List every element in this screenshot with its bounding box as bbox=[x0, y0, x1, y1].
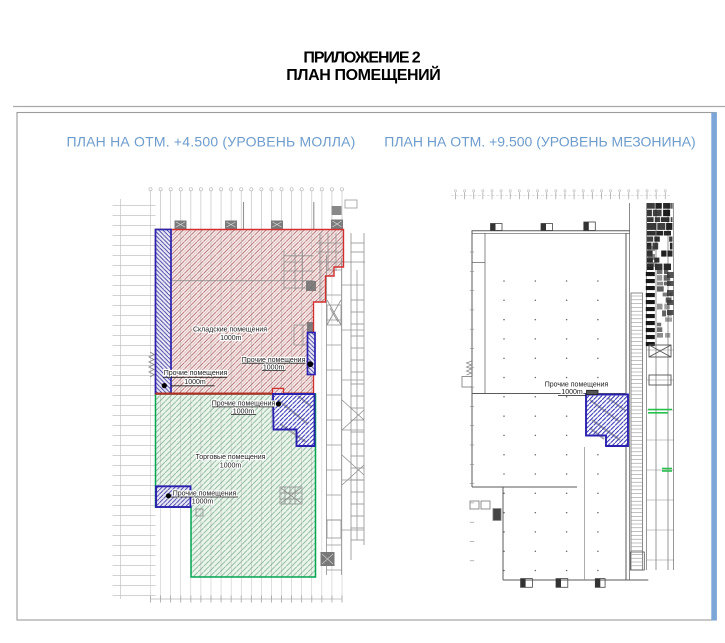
svg-text:ПРИЛОЖЕНИЕ 2: ПРИЛОЖЕНИЕ 2 bbox=[303, 50, 420, 67]
svg-text:ПЛАН НА ОТМ. +4.500 (УРОВЕНЬ М: ПЛАН НА ОТМ. +4.500 (УРОВЕНЬ МОЛЛА) bbox=[66, 134, 355, 150]
svg-text:1000m: 1000m bbox=[184, 379, 206, 386]
svg-text:1000m: 1000m bbox=[220, 335, 242, 342]
svg-text:1000m: 1000m bbox=[192, 499, 214, 506]
svg-text:Прочие помещения: Прочие помещения bbox=[173, 491, 237, 498]
svg-text:1000m: 1000m bbox=[220, 463, 242, 470]
svg-text:Прочие помещения: Прочие помещения bbox=[545, 381, 609, 388]
svg-text:ПЛАН НА ОТМ. +9.500 (УРОВЕНЬ М: ПЛАН НА ОТМ. +9.500 (УРОВЕНЬ МЕЗОНИНА) bbox=[384, 134, 695, 150]
svg-text:1000m: 1000m bbox=[561, 389, 583, 396]
svg-text:Прочие помещения: Прочие помещения bbox=[242, 357, 306, 364]
svg-text:Прочие помещения: Прочие помещения bbox=[164, 370, 228, 377]
svg-text:Торговые помещения: Торговые помещения bbox=[196, 454, 266, 461]
svg-text:ПЛАН ПОМЕЩЕНИЙ: ПЛАН ПОМЕЩЕНИЙ bbox=[286, 65, 440, 84]
svg-text:Складские помещения: Складские помещения bbox=[193, 327, 267, 334]
